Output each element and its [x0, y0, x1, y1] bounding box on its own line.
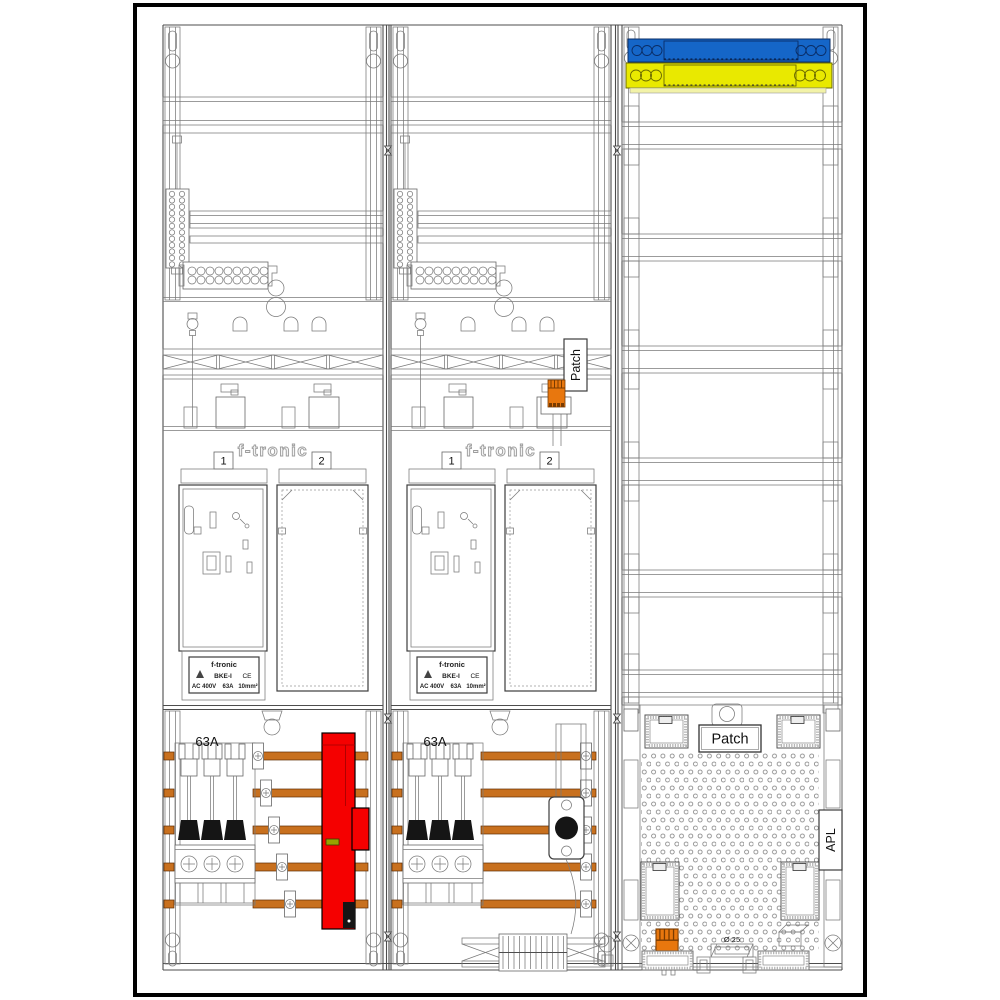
- cutout: [641, 862, 679, 920]
- plate-ce-mark: CE: [470, 673, 480, 680]
- nh-fuse-block: [175, 743, 255, 905]
- brand-title: f-tronic: [238, 441, 309, 460]
- slot-2-label: 2: [546, 456, 552, 468]
- neutral-busbar: [628, 39, 830, 62]
- patch-label-text: Patch: [711, 732, 748, 748]
- pe-busbar: [626, 63, 832, 93]
- switch-latch: [343, 902, 355, 928]
- cutout: [781, 862, 819, 920]
- cable-entry-flange: [642, 951, 693, 970]
- plate-current: 63A: [450, 684, 462, 690]
- cable-entry-flange: [758, 951, 809, 970]
- plate-wire-size: 10mm²: [466, 683, 485, 690]
- slot-1-label: 1: [448, 456, 454, 468]
- apl-label: APL: [819, 810, 842, 870]
- fuse-rating-label: 63A: [195, 734, 218, 749]
- plate-brand: f-tronic: [439, 660, 465, 669]
- conduit-diameter-label: Ø 25: [724, 935, 740, 944]
- gland-icon: [548, 380, 565, 407]
- plate-wire-size: 10mm²: [238, 683, 257, 690]
- switch-indicator: [326, 839, 339, 845]
- meter-cabinet-diagram: f-tronic 1 2 f-tronic BKE-I CE AC 400V 6…: [0, 0, 1000, 1000]
- plate-voltage: AC 400V: [192, 684, 216, 690]
- plate-type: BKE-I: [442, 673, 460, 680]
- slot-2-label: 2: [318, 456, 324, 468]
- apl-label-text: APL: [824, 828, 838, 852]
- cutout: [777, 715, 820, 748]
- patch-riser-text: Patch: [569, 349, 583, 381]
- cutout: [645, 715, 688, 748]
- fuse-rating-label: 63A: [423, 734, 446, 749]
- insulator-bushing: [555, 817, 578, 840]
- perforated-plate: [641, 752, 819, 952]
- nh-fuse-block: [403, 743, 483, 905]
- plate-type: BKE-I: [214, 673, 232, 680]
- plate-voltage: AC 400V: [420, 684, 444, 690]
- patch-riser-label: Patch: [564, 339, 587, 391]
- patch-label: Patch: [699, 725, 761, 752]
- brand-title: f-tronic: [466, 441, 537, 460]
- plate-ce-mark: CE: [242, 673, 252, 680]
- slot-1-label: 1: [220, 456, 226, 468]
- patch-panel: Patch: [622, 704, 842, 975]
- plate-current: 63A: [222, 684, 234, 690]
- plate-brand: f-tronic: [211, 660, 237, 669]
